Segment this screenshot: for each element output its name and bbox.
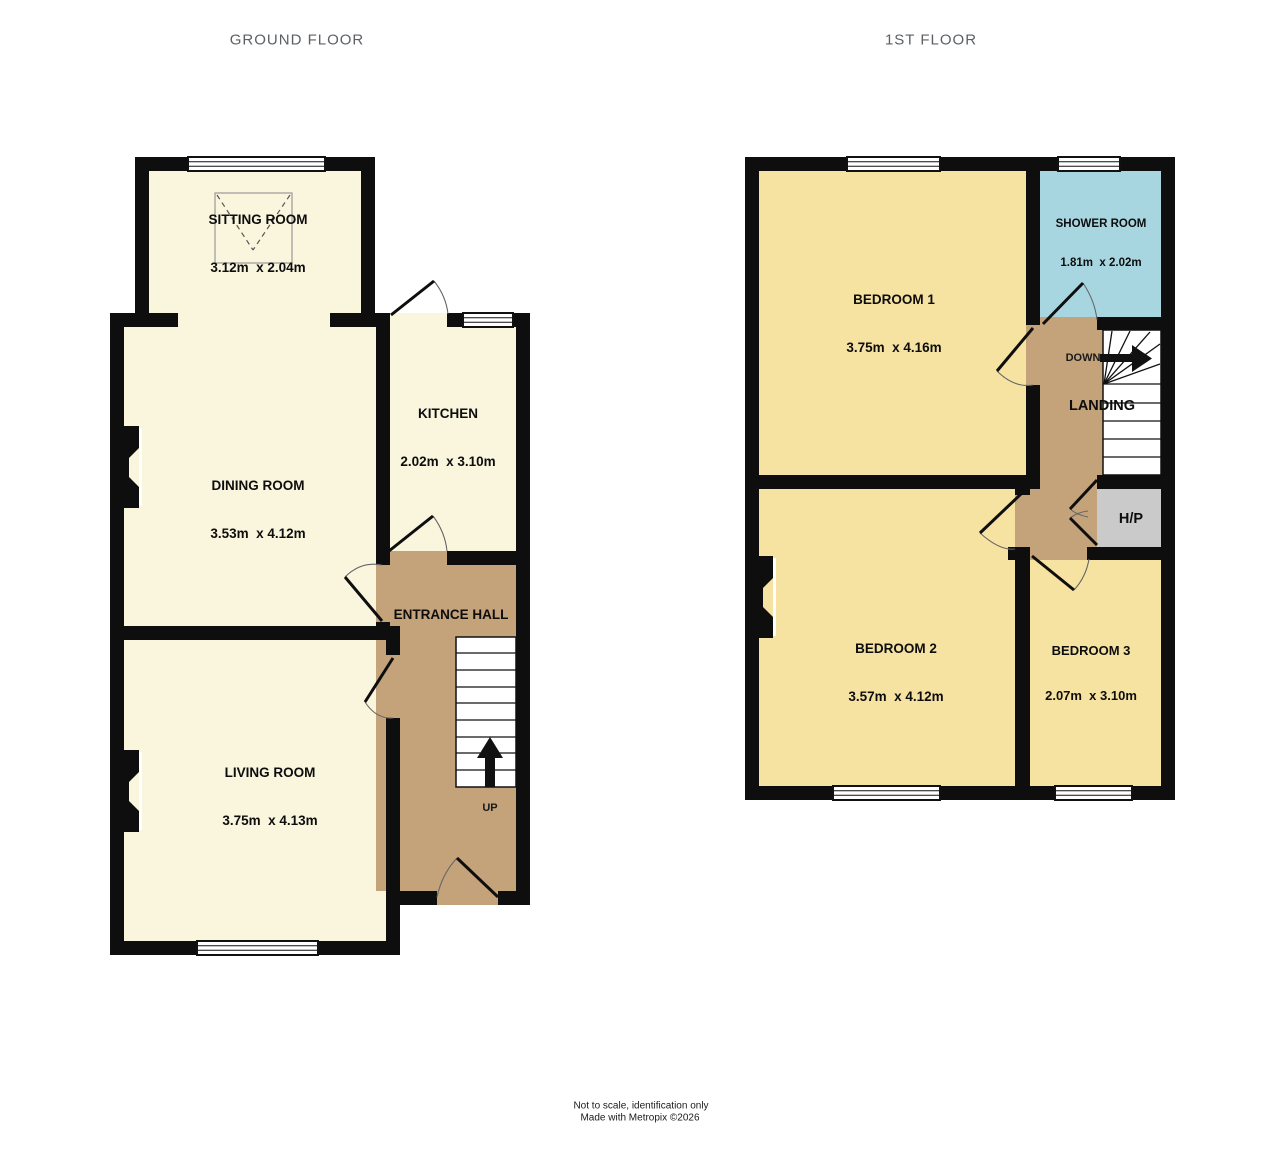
room-name: H/P (1119, 512, 1143, 526)
kitchen-window (463, 313, 513, 327)
living-hearth-line (139, 752, 142, 830)
room-dims: 3.75m x 4.13m (222, 813, 317, 829)
ground-stairs (456, 637, 516, 787)
room-name: KITCHEN (400, 406, 495, 422)
shower-room-window (1058, 157, 1120, 171)
room-name: BEDROOM 3 (1045, 643, 1137, 658)
room-name: ENTRANCE HALL (394, 608, 509, 622)
bedroom2-hearth-line (773, 558, 776, 636)
sitting-room-window (188, 157, 325, 171)
room-dims: 3.75m x 4.16m (846, 340, 941, 356)
footer-disclaimer: Not to scale, identification only (573, 1101, 708, 1112)
bedroom1-label: BEDROOM 1 3.75m x 4.16m (846, 260, 941, 388)
stairs-up-label: UP (482, 802, 497, 814)
kitchen-back-door (391, 281, 434, 315)
floorplan-canvas: GROUND FLOOR 1ST FLOOR SITTING ROOM 3.12… (0, 0, 1280, 1161)
floorplan-drawing (0, 0, 1280, 1161)
room-dims: 3.12m x 2.04m (209, 260, 308, 276)
bedroom2-label: BEDROOM 2 3.57m x 4.12m (848, 609, 943, 737)
room-dims: 1.81m x 2.02m (1056, 257, 1147, 270)
living-room-window (197, 941, 318, 955)
room-name: BEDROOM 1 (846, 292, 941, 308)
room-name: SHOWER ROOM (1056, 218, 1147, 231)
bedroom1-window (847, 157, 940, 171)
room-name: SITTING ROOM (209, 212, 308, 228)
kitchen-label: KITCHEN 2.02m x 3.10m (400, 374, 495, 502)
bedroom2-window (833, 786, 940, 800)
bedroom3-label: BEDROOM 3 2.07m x 3.10m (1045, 613, 1137, 733)
dining-room-label: DINING ROOM 3.53m x 4.12m (210, 446, 305, 574)
room-name: DINING ROOM (210, 478, 305, 494)
room-dims: 3.53m x 4.12m (210, 526, 305, 542)
room-dims: 2.02m x 3.10m (400, 454, 495, 470)
ground-floor-title: GROUND FLOOR (230, 32, 365, 49)
sitting-room-label: SITTING ROOM 3.12m x 2.04m (209, 180, 308, 308)
footer-credit: Made with Metropix ©2026 (580, 1113, 699, 1124)
shower-room-label: SHOWER ROOM 1.81m x 2.02m (1056, 192, 1147, 296)
room-name: LIVING ROOM (222, 765, 317, 781)
entrance-hall-label: ENTRANCE HALL (394, 580, 509, 650)
dining-hearth-line (139, 428, 142, 506)
bedroom3-window (1055, 786, 1132, 800)
stairs-down-label: DOWN (1066, 352, 1101, 364)
room-name: BEDROOM 2 (848, 641, 943, 657)
room-name: LANDING (1069, 399, 1135, 413)
hp-label: H/P (1119, 484, 1143, 554)
room-dims: 3.57m x 4.12m (848, 689, 943, 705)
room-dims: 2.07m x 3.10m (1045, 688, 1137, 703)
living-room-label: LIVING ROOM 3.75m x 4.13m (222, 733, 317, 861)
first-floor-title: 1ST FLOOR (885, 32, 977, 49)
landing-label: LANDING (1069, 371, 1135, 441)
